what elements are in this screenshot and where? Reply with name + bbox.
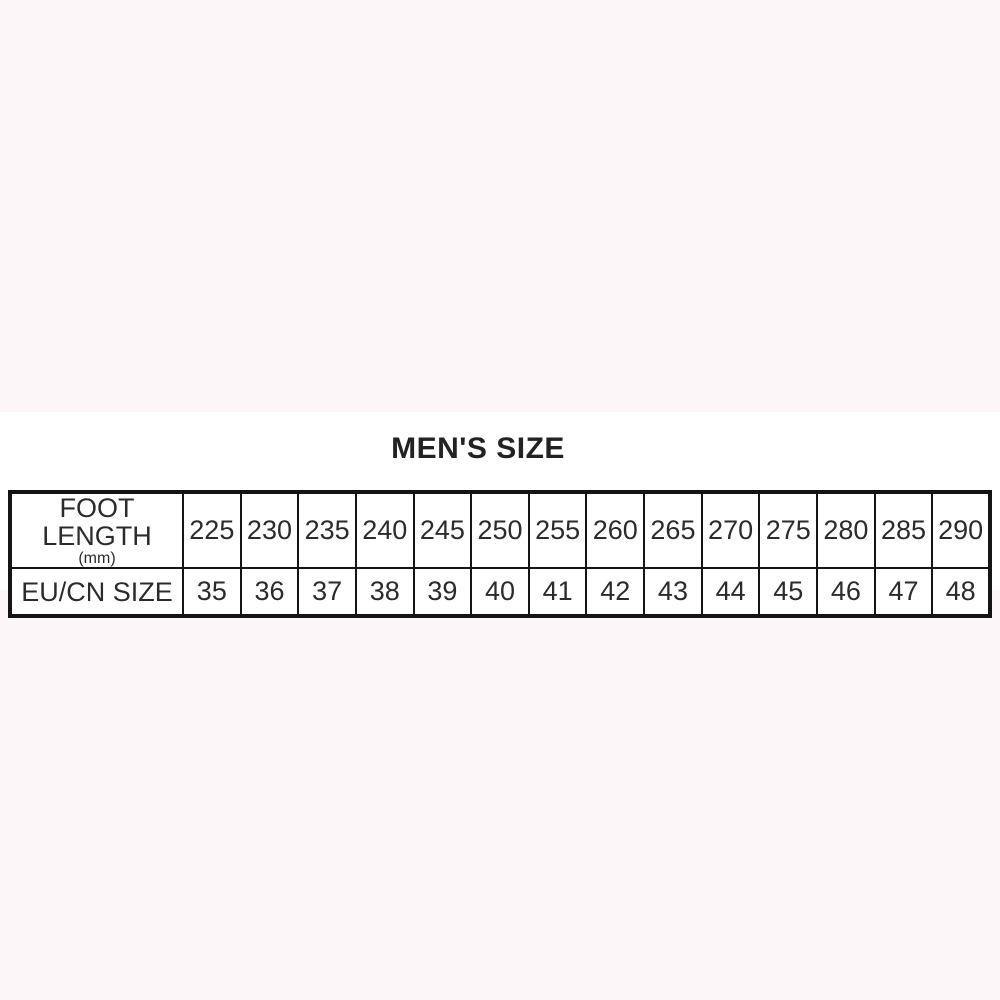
size-cell: 48 <box>932 568 990 616</box>
size-cell: 46 <box>817 568 875 616</box>
size-cell: 43 <box>644 568 702 616</box>
foot-length-cell: 250 <box>471 492 529 568</box>
eu-cn-size-row: EU/CN SIZE 35 36 37 38 39 40 41 42 43 44… <box>10 568 990 616</box>
size-cell: 41 <box>529 568 587 616</box>
mens-size-table: FOOT LENGTH (mm) 225 230 235 240 245 250… <box>8 490 992 618</box>
size-cell: 36 <box>241 568 299 616</box>
size-cell: 39 <box>414 568 472 616</box>
eu-cn-size-row-header: EU/CN SIZE <box>10 568 183 616</box>
foot-length-row: FOOT LENGTH (mm) 225 230 235 240 245 250… <box>10 492 990 568</box>
foot-length-cell: 225 <box>183 492 241 568</box>
size-cell: 38 <box>356 568 414 616</box>
foot-length-cell: 260 <box>586 492 644 568</box>
foot-length-cell: 240 <box>356 492 414 568</box>
foot-length-unit-label: (mm) <box>12 551 182 568</box>
size-cell: 42 <box>586 568 644 616</box>
foot-length-cell: 245 <box>414 492 472 568</box>
size-cell: 44 <box>702 568 760 616</box>
foot-length-cell: 270 <box>702 492 760 568</box>
foot-length-row-header: FOOT LENGTH (mm) <box>10 492 183 568</box>
page-title: MEN'S SIZE <box>0 432 956 466</box>
foot-length-cell: 255 <box>529 492 587 568</box>
foot-length-cell: 275 <box>759 492 817 568</box>
size-cell: 40 <box>471 568 529 616</box>
size-cell: 47 <box>875 568 933 616</box>
size-cell: 35 <box>183 568 241 616</box>
foot-length-cell: 280 <box>817 492 875 568</box>
size-cell: 45 <box>759 568 817 616</box>
foot-length-cell: 290 <box>932 492 990 568</box>
foot-length-cell: 230 <box>241 492 299 568</box>
size-cell: 37 <box>298 568 356 616</box>
foot-length-cell: 265 <box>644 492 702 568</box>
foot-length-label: FOOT LENGTH <box>42 493 152 551</box>
eu-cn-size-label: EU/CN SIZE <box>21 577 173 607</box>
foot-length-cell: 235 <box>298 492 356 568</box>
foot-length-cell: 285 <box>875 492 933 568</box>
